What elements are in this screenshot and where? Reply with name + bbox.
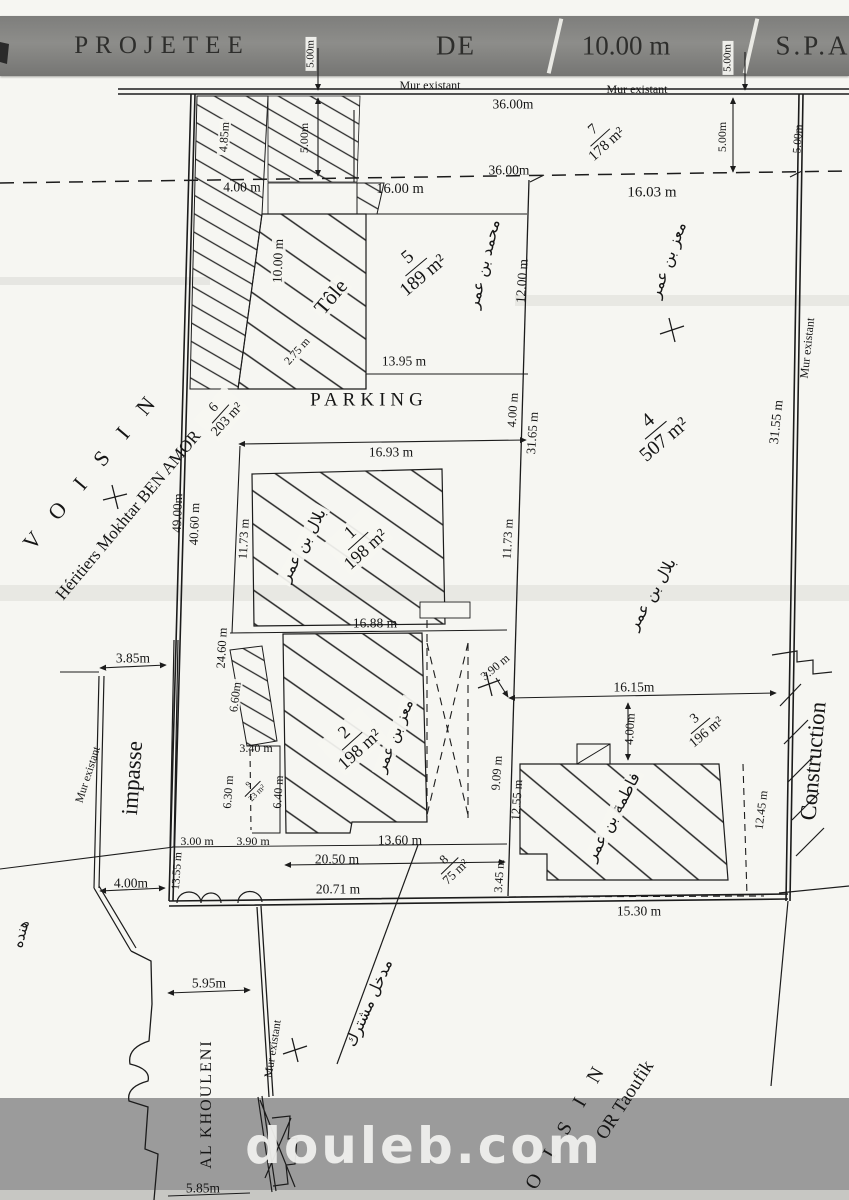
dim-label: 3.90 m (236, 835, 269, 847)
dim-label: 4.85m (217, 118, 232, 155)
dim-label: 31.65 m (524, 411, 540, 454)
dim-label: 16.88 m (353, 616, 397, 630)
dim-label: 15.30 m (617, 904, 661, 918)
dim-label: 5.85m (186, 1181, 220, 1195)
dim-label: 10.00 m (270, 236, 285, 287)
dim-label: 4.00m (114, 876, 148, 890)
plan-linework (0, 0, 849, 1200)
watermark-text: douleb.com (245, 1117, 603, 1175)
dim-label: 5.00m (306, 37, 317, 71)
street-al-khouleni-label: AL KHOULENI (199, 1039, 215, 1168)
dim-label: 3.45 m (492, 859, 506, 893)
parking-label: PARKING (310, 391, 428, 410)
dim-label: 36.00m (489, 163, 530, 177)
dim-label: 13.60 m (378, 833, 422, 847)
dim-label: 16.15m (614, 680, 655, 694)
mur-existant-label: Mur existant (400, 79, 461, 91)
dim-label: 3.00 m (180, 835, 213, 847)
dim-label: 4.00m (623, 713, 637, 745)
mur-existant-label: Mur existant (607, 83, 668, 95)
dim-label: 20.50 m (315, 852, 359, 866)
dim-label: 3.40 m (239, 742, 272, 754)
dim-label: 20.71 m (316, 882, 360, 896)
dim-label: 16.00 m (376, 182, 424, 197)
dim-label: 12.00 m (514, 258, 531, 303)
dim-label: 5.00m (723, 41, 734, 75)
dim-label: 5.00m (792, 124, 806, 154)
dim-label: 40.60 m (187, 502, 201, 545)
dim-label: 16.03 m (627, 186, 676, 201)
dim-label: 49.00m (170, 493, 184, 533)
dim-label: 4.00 m (223, 180, 261, 194)
dim-label: 6.30 m (221, 775, 235, 809)
dim-label: 5.95m (192, 976, 226, 990)
dim-label: 5.00m (716, 122, 728, 152)
dim-label: 6.40 m (271, 775, 285, 809)
dim-label: 4.00 m (506, 392, 521, 428)
dim-label: 11.73 m (237, 518, 252, 559)
dim-label: 24.60 m (215, 627, 230, 669)
dim-label: 16.93 m (369, 445, 413, 459)
dim-label: 12.55 m (509, 779, 524, 821)
dim-label: 36.00m (493, 97, 534, 111)
impasse-label: impasse (118, 740, 146, 816)
dim-label: 3.85m (116, 651, 150, 665)
dim-label: 9.09 m (490, 755, 505, 791)
scanned-survey-plan: PROJETEE DE 10.00 m S.P.A (0, 0, 849, 1200)
dim-label: 11.73 m (501, 518, 516, 559)
dim-label: 13.95 m (382, 354, 426, 368)
dim-label: 5.00m (298, 123, 310, 153)
